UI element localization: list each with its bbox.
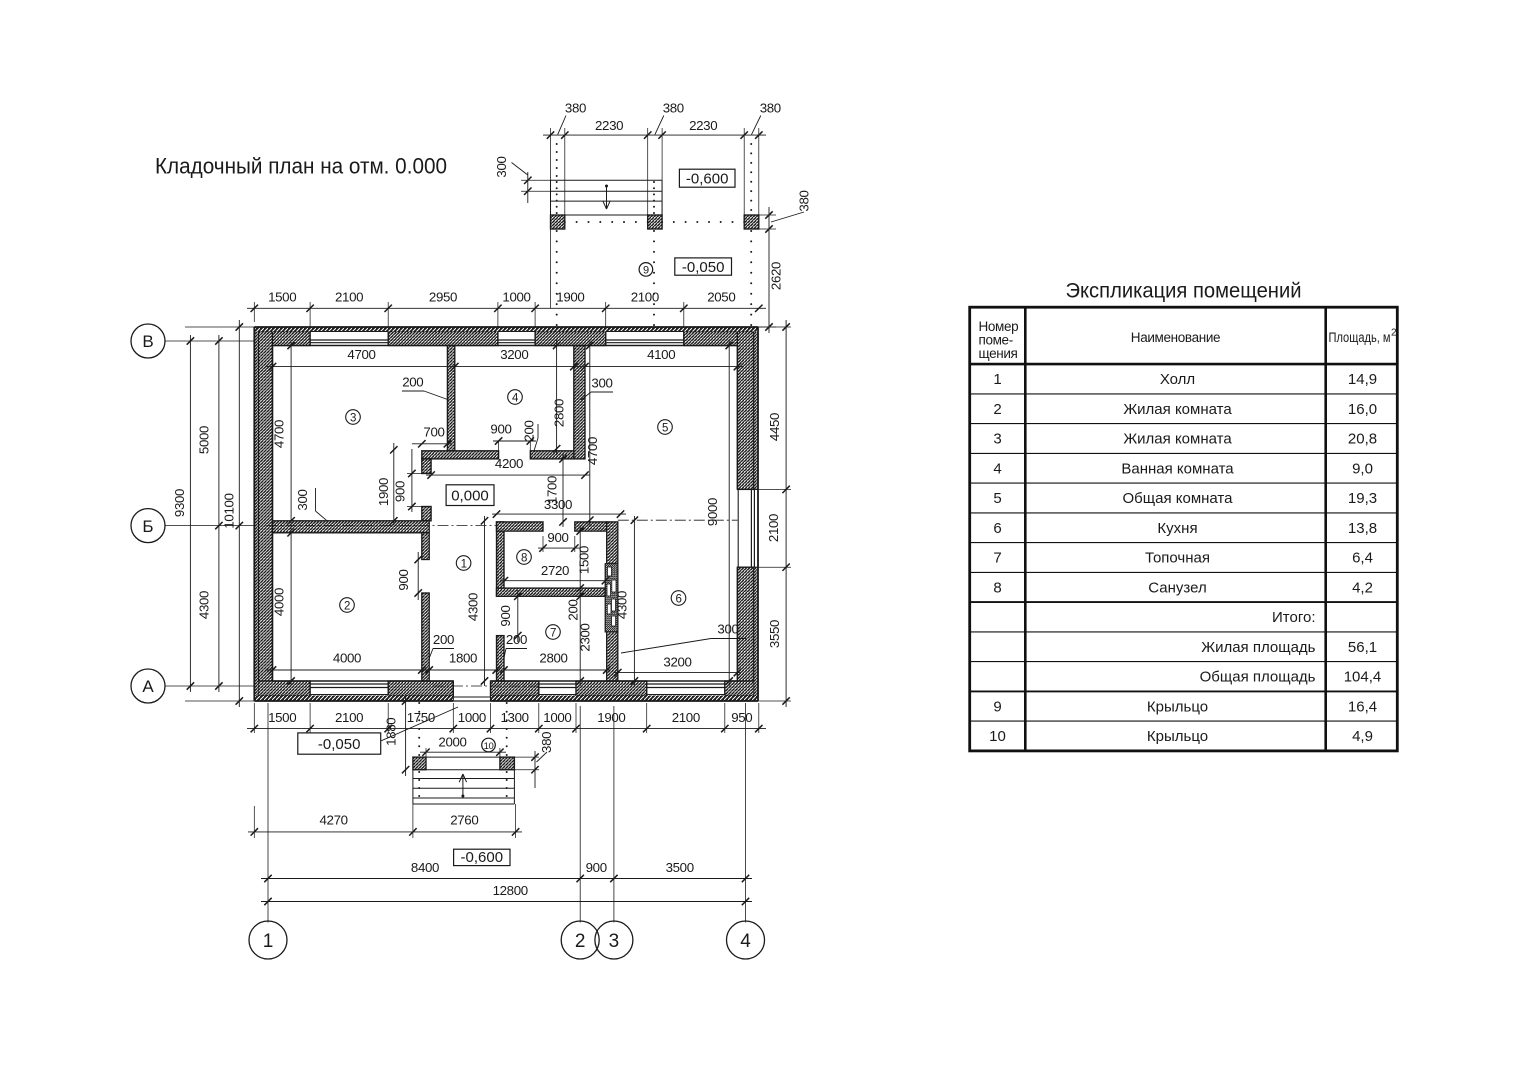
svg-text:2: 2	[993, 401, 1001, 418]
svg-text:1500: 1500	[268, 290, 296, 305]
svg-text:6: 6	[675, 593, 681, 605]
svg-text:16,0: 16,0	[1348, 401, 1377, 418]
svg-text:16,4: 16,4	[1348, 698, 1377, 715]
svg-text:Холл: Холл	[1160, 371, 1195, 388]
svg-text:4270: 4270	[320, 812, 348, 827]
svg-text:4300: 4300	[466, 593, 481, 621]
svg-text:8: 8	[521, 552, 527, 564]
svg-text:2800: 2800	[539, 651, 567, 666]
svg-text:В: В	[142, 332, 153, 351]
svg-text:20,8: 20,8	[1348, 431, 1377, 448]
svg-text:6: 6	[993, 520, 1001, 537]
svg-text:1: 1	[461, 558, 467, 570]
svg-text:4700: 4700	[271, 420, 286, 448]
svg-text:2230: 2230	[689, 118, 717, 133]
svg-text:2950: 2950	[429, 290, 457, 305]
svg-text:1000: 1000	[458, 710, 486, 725]
svg-text:900: 900	[498, 605, 513, 626]
svg-text:2800: 2800	[552, 399, 567, 427]
svg-text:1900: 1900	[376, 478, 391, 506]
svg-text:Б: Б	[142, 517, 153, 536]
svg-text:-0,600: -0,600	[461, 849, 504, 866]
svg-text:1000: 1000	[543, 710, 571, 725]
svg-text:1: 1	[993, 371, 1001, 388]
svg-text:Топочная: Топочная	[1145, 550, 1210, 567]
svg-text:-0,600: -0,600	[686, 170, 729, 187]
svg-text:9: 9	[643, 265, 649, 277]
svg-text:4300: 4300	[615, 591, 630, 619]
svg-text:Общая комната: Общая комната	[1123, 490, 1234, 507]
svg-text:10100: 10100	[221, 493, 236, 528]
svg-text:300: 300	[717, 622, 738, 637]
svg-text:А: А	[142, 677, 154, 696]
svg-text:200: 200	[402, 375, 423, 390]
svg-text:Жилая комната: Жилая комната	[1123, 401, 1232, 418]
svg-text:3500: 3500	[666, 860, 694, 875]
svg-text:1: 1	[263, 931, 274, 952]
svg-text:-0,050: -0,050	[682, 259, 725, 276]
svg-text:9300: 9300	[172, 489, 187, 517]
svg-text:3: 3	[993, 431, 1001, 448]
svg-text:6,4: 6,4	[1352, 550, 1373, 567]
svg-text:1900: 1900	[597, 710, 625, 725]
svg-text:Жилая площадь: Жилая площадь	[1201, 639, 1315, 656]
svg-text:Кладочный план на отм. 0.000: Кладочный план на отм. 0.000	[155, 154, 447, 179]
svg-text:380: 380	[565, 101, 586, 116]
svg-text:-0,050: -0,050	[318, 736, 361, 753]
svg-text:900: 900	[547, 530, 568, 545]
svg-text:300: 300	[591, 376, 612, 391]
svg-text:4700: 4700	[585, 437, 600, 465]
svg-text:2300: 2300	[578, 623, 593, 651]
svg-text:Экспликация помещений: Экспликация помещений	[1066, 279, 1302, 303]
svg-text:12800: 12800	[493, 883, 528, 898]
svg-text:9000: 9000	[705, 498, 720, 526]
svg-text:19,3: 19,3	[1348, 490, 1377, 507]
svg-text:3550: 3550	[767, 620, 782, 648]
svg-text:200: 200	[566, 599, 581, 620]
svg-text:950: 950	[731, 710, 752, 725]
svg-text:700: 700	[423, 425, 444, 440]
svg-text:200: 200	[522, 420, 537, 441]
svg-text:56,1: 56,1	[1348, 639, 1377, 656]
svg-text:8400: 8400	[411, 860, 439, 875]
svg-text:Наименование: Наименование	[1131, 330, 1220, 345]
svg-text:4200: 4200	[495, 456, 523, 471]
svg-text:2100: 2100	[631, 290, 659, 305]
svg-text:7: 7	[550, 627, 556, 639]
svg-text:Ванная комната: Ванная комната	[1121, 460, 1234, 477]
svg-text:1000: 1000	[502, 290, 530, 305]
svg-text:1300: 1300	[501, 710, 529, 725]
svg-text:2: 2	[344, 600, 350, 612]
svg-text:2720: 2720	[541, 563, 569, 578]
svg-text:1500: 1500	[268, 710, 296, 725]
svg-text:300: 300	[295, 489, 310, 510]
svg-text:3: 3	[609, 931, 620, 952]
svg-text:380: 380	[797, 190, 812, 211]
svg-text:5: 5	[662, 422, 668, 434]
svg-text:200: 200	[433, 632, 454, 647]
svg-text:4100: 4100	[647, 347, 675, 362]
svg-text:2620: 2620	[769, 262, 784, 290]
svg-text:3200: 3200	[500, 347, 528, 362]
svg-text:380: 380	[760, 101, 781, 116]
svg-text:4: 4	[512, 392, 519, 404]
svg-text:900: 900	[393, 481, 408, 502]
svg-text:4000: 4000	[271, 588, 286, 616]
svg-text:5000: 5000	[196, 426, 211, 454]
svg-text:4300: 4300	[196, 591, 211, 619]
svg-text:9: 9	[993, 698, 1001, 715]
svg-text:900: 900	[490, 422, 511, 437]
svg-text:4450: 4450	[767, 413, 782, 441]
svg-text:1500: 1500	[577, 546, 592, 574]
svg-text:1900: 1900	[556, 290, 584, 305]
svg-text:10: 10	[989, 728, 1006, 745]
svg-text:8: 8	[993, 579, 1001, 596]
svg-text:2100: 2100	[672, 710, 700, 725]
svg-text:3: 3	[350, 412, 356, 424]
svg-text:4700: 4700	[347, 347, 375, 362]
svg-text:Крыльцо: Крыльцо	[1147, 728, 1208, 745]
svg-text:900: 900	[396, 569, 411, 590]
svg-text:Кухня: Кухня	[1157, 520, 1197, 537]
svg-text:4: 4	[993, 460, 1001, 477]
svg-text:380: 380	[663, 101, 684, 116]
svg-text:1800: 1800	[449, 651, 477, 666]
svg-text:1750: 1750	[407, 710, 435, 725]
svg-text:7: 7	[993, 550, 1001, 567]
svg-text:Санузел: Санузел	[1148, 579, 1206, 596]
svg-text:Крыльцо: Крыльцо	[1147, 698, 1208, 715]
svg-text:2100: 2100	[766, 514, 781, 542]
svg-text:2: 2	[575, 931, 586, 952]
svg-text:9,0: 9,0	[1352, 460, 1373, 477]
svg-text:3200: 3200	[663, 655, 691, 670]
svg-text:Итого:: Итого:	[1272, 609, 1315, 626]
svg-text:14,9: 14,9	[1348, 371, 1377, 388]
svg-text:1700: 1700	[545, 476, 560, 504]
svg-text:2: 2	[1391, 328, 1397, 339]
svg-text:4,9: 4,9	[1352, 728, 1373, 745]
svg-text:щения: щения	[979, 346, 1018, 361]
svg-text:900: 900	[586, 860, 607, 875]
svg-text:Жилая комната: Жилая комната	[1123, 431, 1232, 448]
svg-text:2100: 2100	[335, 710, 363, 725]
svg-text:4,2: 4,2	[1352, 579, 1373, 596]
svg-text:5: 5	[993, 490, 1001, 507]
svg-text:Общая площадь: Общая площадь	[1200, 669, 1316, 686]
svg-text:4000: 4000	[333, 651, 361, 666]
svg-text:0,000: 0,000	[451, 488, 489, 505]
svg-text:13,8: 13,8	[1348, 520, 1377, 537]
svg-text:2760: 2760	[450, 812, 478, 827]
svg-text:2230: 2230	[595, 118, 623, 133]
svg-text:2100: 2100	[335, 290, 363, 305]
svg-text:104,4: 104,4	[1344, 669, 1382, 686]
svg-text:10: 10	[484, 741, 494, 752]
svg-text:380: 380	[539, 732, 554, 753]
svg-text:Площадь, м: Площадь, м	[1329, 330, 1391, 345]
svg-text:2050: 2050	[707, 290, 735, 305]
svg-text:300: 300	[494, 156, 509, 177]
svg-text:200: 200	[506, 632, 527, 647]
svg-text:2000: 2000	[438, 735, 466, 750]
svg-text:4: 4	[740, 931, 751, 952]
